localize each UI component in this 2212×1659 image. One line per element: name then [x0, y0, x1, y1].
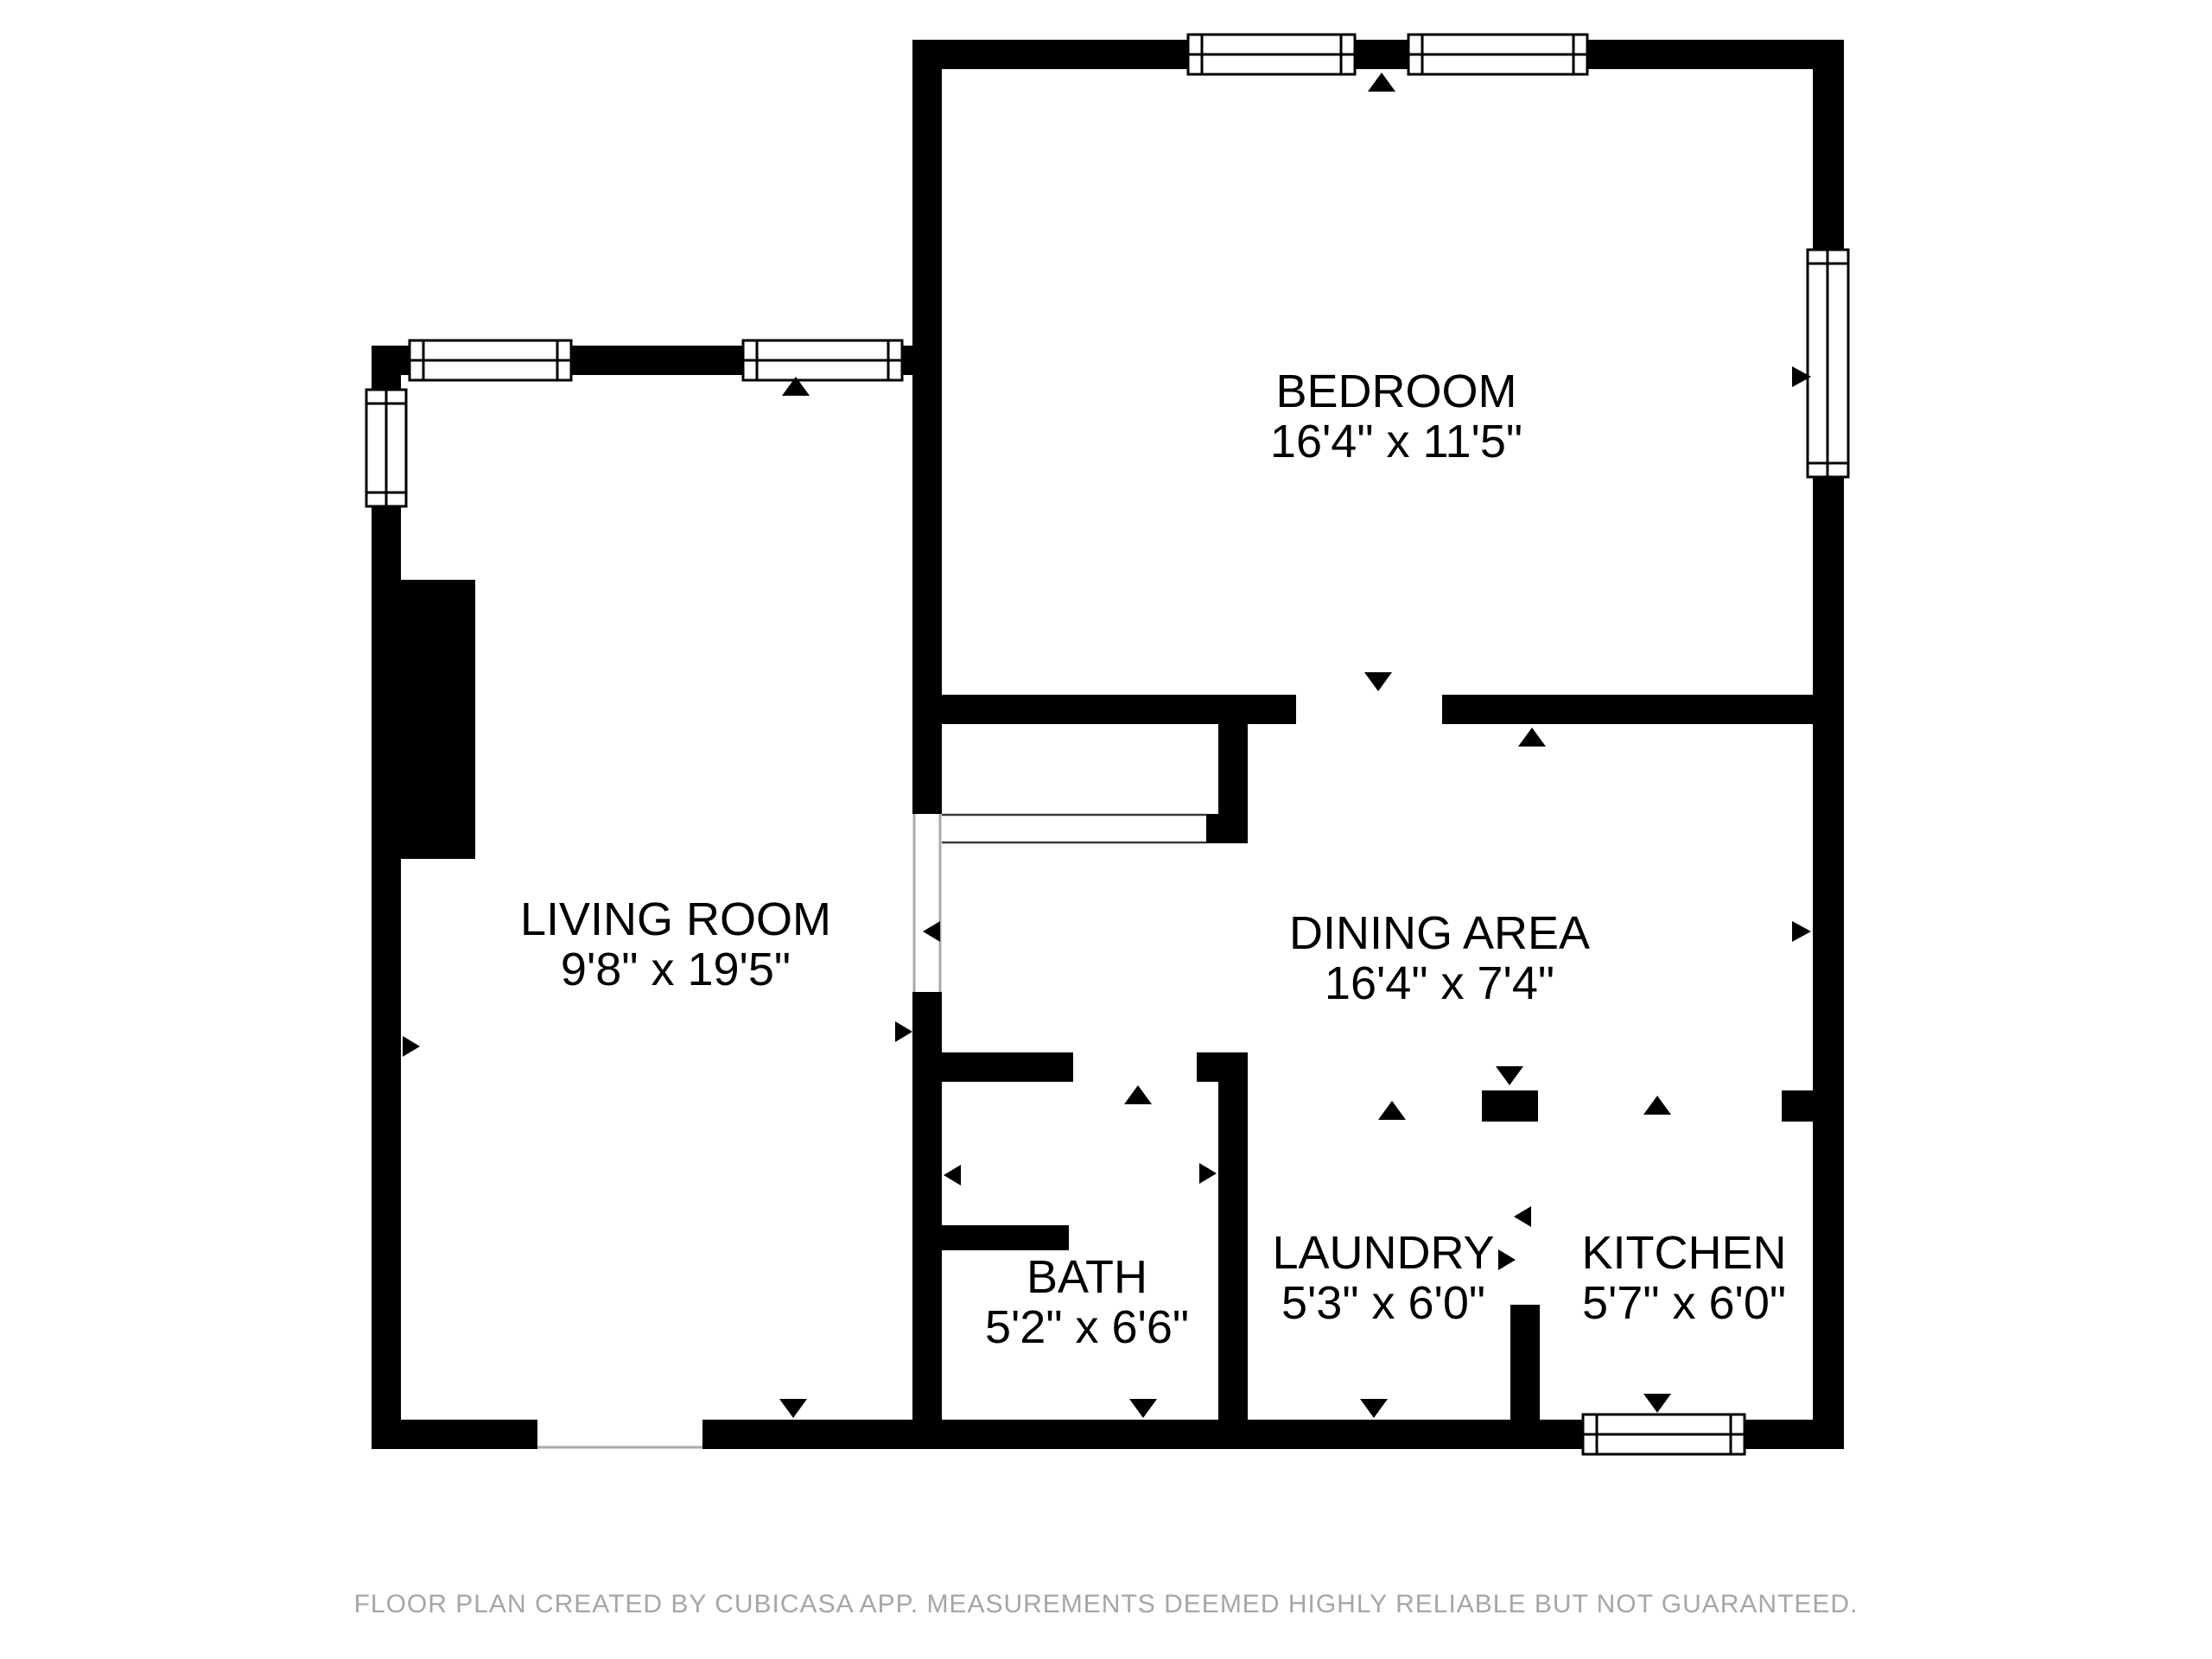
floor-plan-canvas	[0, 0, 2212, 1659]
laundry-label: LAUNDRY 5'3" x 6'0"	[1272, 1228, 1494, 1328]
wall-left-exterior	[372, 346, 401, 1449]
window-bedroom-top-1	[1188, 35, 1355, 74]
bedroom-dimensions: 16'4" x 11'5"	[1270, 416, 1522, 467]
window-living-left	[366, 390, 406, 506]
window-bedroom-top-2	[1408, 35, 1587, 74]
bath-label: BATH 5'2" x 6'6"	[985, 1252, 1189, 1352]
arrow-down-icon-dining-stub	[1496, 1066, 1523, 1085]
arrow-down-icon-bedroom-door	[1364, 672, 1392, 691]
arrow-right-icon-dining-right	[1792, 921, 1811, 942]
dining-area-label: DINING AREA 16'4" x 7'4"	[1289, 908, 1590, 1008]
arrow-right-icon-laundry-kitchen	[1498, 1249, 1516, 1270]
arrow-right-icon-bath	[1199, 1163, 1217, 1184]
wall-bottom-1	[372, 1420, 537, 1449]
wall-right-stub	[1782, 1090, 1813, 1122]
wall-laundry-kitchen-divider	[1510, 1305, 1540, 1449]
arrow-down-icon-kitchen-window	[1643, 1394, 1671, 1413]
kitchen-label: KITCHEN 5'7" x 6'0"	[1581, 1228, 1786, 1328]
window-living-top-2	[743, 340, 902, 380]
wall-bath-top-corner	[1197, 1052, 1248, 1082]
footer-disclaimer: FLOOR PLAN CREATED BY CUBICASA APP. MEAS…	[0, 1590, 2212, 1619]
dining-area-name: DINING AREA	[1289, 907, 1590, 959]
wall-closet-corner	[1206, 814, 1248, 843]
arrow-up-icon-kitchen	[1643, 1096, 1671, 1115]
closet-opening	[942, 815, 1206, 842]
window-bedroom-right	[1808, 250, 1848, 477]
bath-dimensions: 5'2" x 6'6"	[985, 1302, 1189, 1352]
living-room-dimensions: 9'8" x 19'5"	[520, 944, 831, 995]
wall-bath-laundry-divider	[1218, 1052, 1248, 1449]
laundry-dimensions: 5'3" x 6'0"	[1272, 1278, 1494, 1328]
arrow-left-icon-hall-opening	[923, 921, 940, 942]
arrow-down-icon-bath-bottom	[1129, 1399, 1157, 1418]
arrow-right-icon-living-divider	[895, 1021, 912, 1042]
wall-closet-right	[1218, 724, 1248, 843]
bedroom-name: BEDROOM	[1275, 365, 1516, 417]
arrow-down-icon-living-bottom	[779, 1399, 807, 1418]
arrow-left-icon-laundry-kitchen	[1514, 1206, 1531, 1227]
kitchen-name: KITCHEN	[1581, 1227, 1786, 1279]
arrow-right-icon-living-left-wall	[403, 1036, 420, 1057]
wall-bedroom-bottom-left	[912, 695, 1296, 724]
arrow-left-icon-bath	[944, 1165, 961, 1185]
window-living-top-1	[410, 340, 571, 380]
living-room-name: LIVING ROOM	[520, 893, 831, 945]
wall-bottom-3	[1745, 1420, 1844, 1449]
laundry-name: LAUNDRY	[1272, 1227, 1494, 1279]
bedroom-label: BEDROOM 16'4" x 11'5"	[1270, 366, 1522, 467]
wall-bottom-2	[702, 1420, 1583, 1449]
arrow-right-icon-bedroom-window	[1792, 366, 1811, 387]
arrow-up-icon-bedroom-top	[1368, 73, 1395, 92]
wall-right-exterior	[1813, 40, 1844, 1449]
wall-center-divider-lower	[912, 992, 942, 1449]
arrow-up-icon-bath-door	[1124, 1085, 1152, 1104]
wall-chimney-protrusion	[372, 580, 475, 859]
door-arrows-layer	[403, 73, 1811, 1418]
kitchen-dimensions: 5'7" x 6'0"	[1581, 1278, 1786, 1328]
arrow-down-icon-laundry-bottom	[1360, 1399, 1388, 1418]
wall-bath-stub	[942, 1225, 1069, 1250]
arrow-up-icon-living-top	[782, 377, 810, 396]
wall-center-divider-upper	[912, 40, 942, 814]
wall-living-top	[372, 346, 942, 375]
arrow-up-icon-dining-door	[1518, 728, 1546, 747]
wall-dining-laundry-stub	[1482, 1090, 1538, 1122]
bath-name: BATH	[1027, 1251, 1147, 1303]
floor-plan-page: { "page": { "background": "#ffffff" }, "…	[0, 0, 2212, 1659]
window-kitchen-bottom	[1583, 1414, 1745, 1454]
wall-bedroom-top	[912, 40, 1843, 69]
wall-bath-top	[942, 1052, 1073, 1082]
arrow-up-icon-laundry	[1378, 1101, 1406, 1120]
wall-bedroom-bottom-right	[1442, 695, 1813, 724]
living-room-label: LIVING ROOM 9'8" x 19'5"	[520, 894, 831, 995]
dining-area-dimensions: 16'4" x 7'4"	[1289, 958, 1590, 1008]
